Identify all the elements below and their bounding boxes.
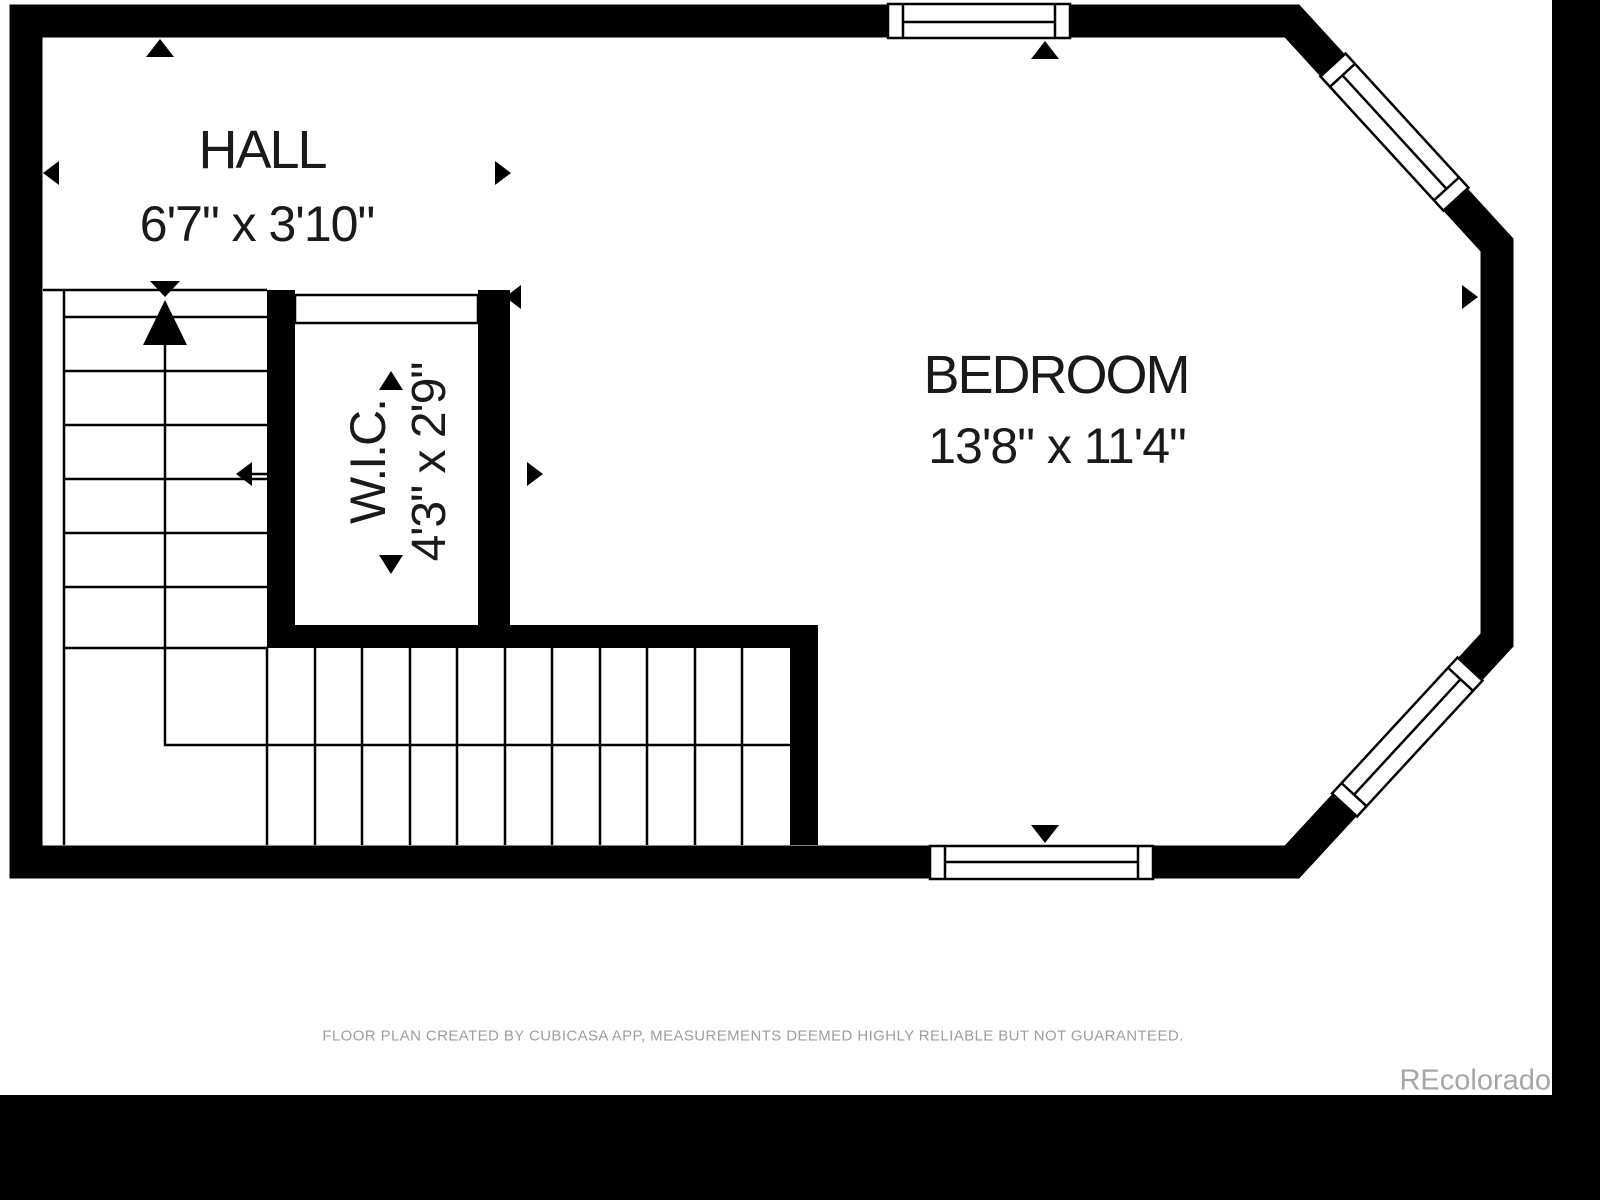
wic-left-wall	[267, 290, 295, 648]
hall-arrow-left-icon	[43, 161, 59, 185]
stair-top-wall	[267, 625, 818, 648]
hall-room-name: HALL	[198, 123, 325, 177]
floorplan-page: HALL 6'7" x 3'10" W.I.C. 4'3" x 2'9" BED…	[0, 0, 1600, 1200]
bedroom-arrow-right-icon	[1462, 285, 1478, 309]
wic-arrow-left-icon	[236, 462, 252, 486]
hall-arrow-up-icon	[146, 39, 174, 57]
hall-room-dimensions: 6'7" x 3'10"	[140, 199, 374, 249]
watermark: REcolorado	[1399, 1067, 1551, 1096]
window-bay-upper	[1320, 54, 1468, 211]
footer-disclaimer: FLOOR PLAN CREATED BY CUBICASA APP, MEAS…	[322, 1029, 1183, 1044]
wic-arrow-right-icon	[527, 462, 543, 486]
letterbox-bottom	[0, 1095, 1600, 1200]
bedroom-room-dimensions: 13'8" x 11'4"	[928, 421, 1186, 471]
wic-room-dimensions: 4'3" x 2'9"	[399, 363, 459, 562]
wic-room-label: W.I.C. 4'3" x 2'9"	[337, 363, 460, 562]
window-bottom	[930, 846, 1153, 879]
hall-arrow-right-icon	[495, 161, 511, 185]
window-top	[888, 4, 1070, 38]
wic-right-wall	[478, 290, 510, 648]
bedroom-arrow-up-icon	[1031, 41, 1059, 59]
wic-room-name: W.I.C.	[337, 363, 400, 562]
stair-right-wall	[790, 625, 818, 845]
floorplan-drawing	[0, 0, 1600, 1200]
bedroom-arrow-down-icon	[1031, 825, 1059, 843]
stair-treads-lower	[315, 648, 742, 845]
letterbox-right	[1552, 0, 1600, 1200]
window-bay-lower	[1332, 657, 1482, 816]
bedroom-room-name: BEDROOM	[923, 348, 1188, 402]
stair-direction-arrow-icon	[143, 300, 790, 745]
wic-door-opening	[295, 295, 478, 323]
